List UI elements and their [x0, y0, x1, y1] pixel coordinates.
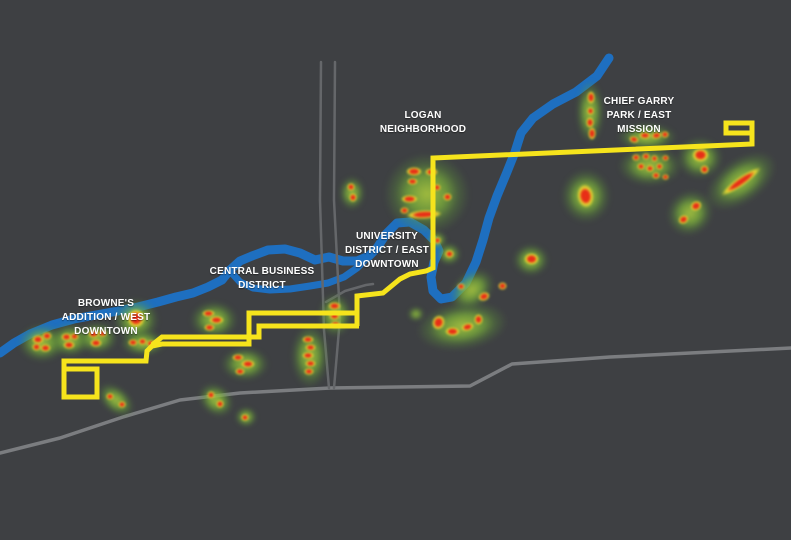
neighborhood-label-line: DOWNTOWN	[345, 258, 429, 272]
neighborhood-label-line: ADDITION / WEST	[62, 311, 151, 325]
neighborhood-label-line: MISSION	[604, 123, 675, 137]
neighborhood-label-cbd: CENTRAL BUSINESSDISTRICT	[210, 265, 315, 293]
neighborhood-label-line: CHIEF GARRY	[604, 95, 675, 109]
neighborhood-label-line: DOWNTOWN	[62, 325, 151, 339]
neighborhood-label-brownes: BROWNE'SADDITION / WESTDOWNTOWN	[62, 297, 151, 339]
neighborhood-label-line: DISTRICT / EAST	[345, 244, 429, 258]
neighborhood-label-line: DISTRICT	[210, 279, 315, 293]
neighborhood-label-logan: LOGANNEIGHBORHOOD	[380, 109, 466, 137]
neighborhood-label-line: LOGAN	[380, 109, 466, 123]
neighborhood-label-chief-garry: CHIEF GARRYPARK / EASTMISSION	[604, 95, 675, 137]
neighborhood-heatmap-map: BROWNE'SADDITION / WESTDOWNTOWNCENTRAL B…	[0, 0, 791, 540]
neighborhood-label-line: BROWNE'S	[62, 297, 151, 311]
neighborhood-label-line: CENTRAL BUSINESS	[210, 265, 315, 279]
neighborhood-label-line: NEIGHBORHOOD	[380, 123, 466, 137]
neighborhood-label-line: UNIVERSITY	[345, 230, 429, 244]
route-main	[357, 123, 752, 326]
neighborhood-label-line: PARK / EAST	[604, 109, 675, 123]
neighborhood-label-university: UNIVERSITYDISTRICT / EASTDOWNTOWN	[345, 230, 429, 272]
